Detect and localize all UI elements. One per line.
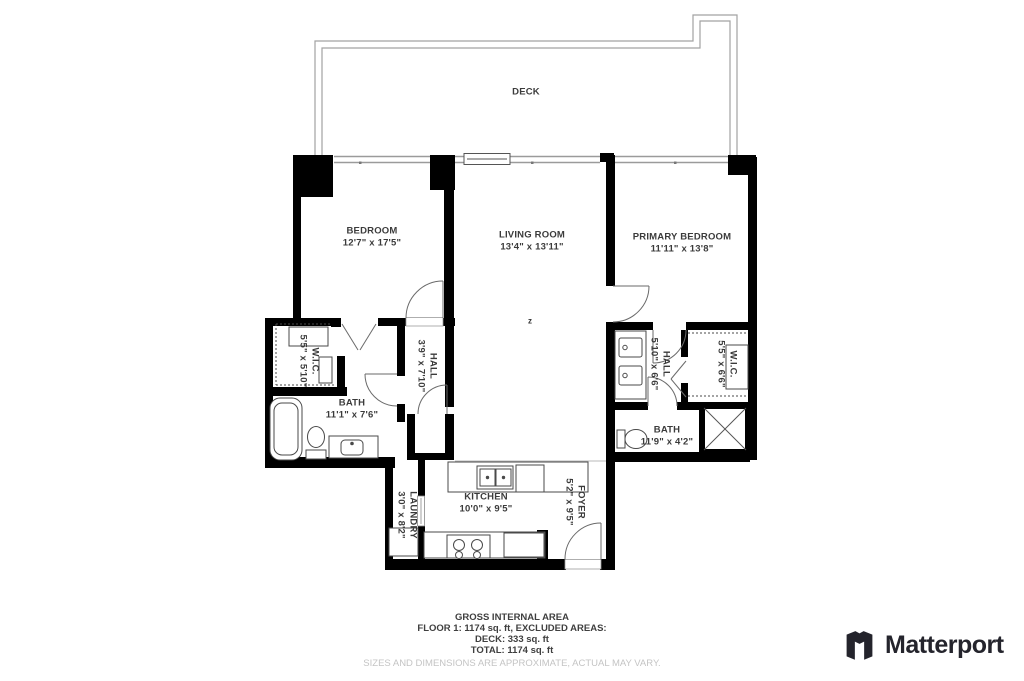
floorplan-page: DECK BEDROOM 12'7" x 17'5" LIVING ROOM 1… [0, 0, 1024, 681]
room-label-deck: DECK [512, 86, 540, 98]
room-name: KITCHEN [460, 492, 513, 504]
room-label-foyer: FOYER 5'2" x 9'5" [564, 478, 587, 525]
room-name: PRIMARY BEDROOM [633, 232, 732, 244]
shower [702, 406, 748, 452]
room-name: W.I.C. [727, 340, 739, 387]
room-name: LAUNDRY [407, 491, 419, 539]
room-name: LIVING ROOM [499, 230, 565, 242]
matterport-logo-icon [843, 629, 876, 662]
laundry-sliding-door [418, 496, 425, 526]
room-dims: 3'0" x 8'2" [396, 491, 408, 539]
primary-bedroom-door [613, 286, 649, 322]
room-dims: 11'1" x 7'6" [326, 409, 378, 421]
floorplan-drawing [0, 0, 1024, 681]
kitchen-counter-bottom [424, 532, 545, 559]
room-dims: 12'7" x 17'5" [343, 237, 401, 249]
room-label-wic-left: W.I.C. 5'5" x 5'10" [298, 335, 321, 388]
room-label-kitchen: KITCHEN 10'0" x 9'5" [460, 492, 513, 515]
double-vanity [615, 331, 646, 399]
room-name: DECK [512, 86, 540, 98]
room-dims: 10'0" x 9'5" [460, 503, 513, 515]
matterport-logo: Matterport [843, 629, 1004, 662]
room-dims: 5'5" x 6'6" [716, 340, 728, 387]
entry-door [565, 523, 601, 569]
room-label-bath-right: BATH 11'9" x 4'2" [641, 425, 693, 448]
room-label-living-room: LIVING ROOM 13'4" x 13'11" [499, 230, 565, 253]
room-name: W.I.C. [309, 335, 321, 388]
room-dims: 3'9" x 7'10" [416, 340, 428, 393]
toilet-left [306, 427, 326, 460]
dishwasher [504, 533, 544, 557]
room-dims: 11'11" x 13'8" [633, 243, 732, 255]
gross-internal-area-label: GROSS INTERNAL AREA [0, 612, 1024, 623]
room-dims: 5'5" x 5'10" [298, 335, 310, 388]
room-name: HALL [427, 340, 439, 393]
room-dims: 13'4" x 13'11" [499, 241, 565, 253]
room-label-wic-right: W.I.C. 5'5" x 6'6" [716, 340, 739, 387]
room-name: BATH [641, 425, 693, 437]
vanity-left [329, 436, 378, 458]
room-name: BATH [326, 398, 378, 410]
room-name: FOYER [575, 478, 587, 525]
room-dims: 5'10" x 6'6" [649, 338, 661, 391]
room-name: HALL [660, 338, 672, 391]
room-label-bath-left: BATH 11'1" x 7'6" [326, 398, 378, 421]
room-dims: 11'9" x 4'2" [641, 436, 693, 448]
room-label-laundry: LAUNDRY 3'0" x 8'2" [396, 491, 419, 539]
deck-outline [315, 15, 737, 155]
room-label-primary-bedroom: PRIMARY BEDROOM 11'11" x 13'8" [633, 232, 732, 255]
room-label-bedroom: BEDROOM 12'7" x 17'5" [343, 226, 401, 249]
plan-marker: z [528, 317, 532, 326]
wic-left-bifold-door [342, 324, 376, 350]
room-label-hall-left: HALL 3'9" x 7'10" [416, 340, 439, 393]
room-dims: 5'2" x 9'5" [564, 478, 576, 525]
room-name: BEDROOM [343, 226, 401, 238]
bedroom-door [406, 281, 443, 326]
fridge [516, 465, 544, 492]
bathtub [270, 398, 302, 460]
sliding-door [464, 154, 510, 165]
matterport-logo-text: Matterport [885, 631, 1004, 660]
room-label-hall-right: HALL 5'10" x 6'6" [649, 338, 672, 391]
